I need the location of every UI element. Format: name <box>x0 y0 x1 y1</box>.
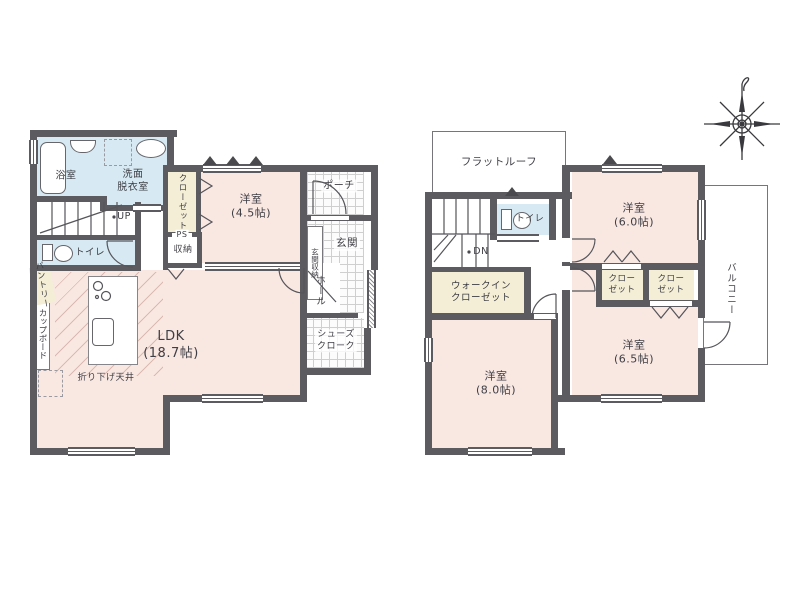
wall <box>551 313 558 455</box>
room-label-wic: ウォークイン クローゼット <box>451 281 511 306</box>
closet-door-opening <box>602 264 641 269</box>
room-label-balcony: バルコニー <box>723 263 737 316</box>
sliding-door <box>497 234 539 242</box>
wall <box>490 199 497 240</box>
wall <box>562 172 570 238</box>
window <box>697 200 706 240</box>
room-label-bedroom65: 洋室 (6.5帖) <box>614 339 654 368</box>
floorplan-canvas: 浴室 洗面 脱衣室 クローゼット UP トイレ PS 収納 洋室 (4.5帖) … <box>0 0 800 600</box>
wall <box>562 290 570 402</box>
room-label-bedroom80: 洋室 (8.0帖) <box>476 370 516 399</box>
room-label-closet-b: クロー ゼット <box>657 274 684 296</box>
room-bedroom-6-5-nook <box>572 270 596 307</box>
window <box>602 164 662 173</box>
wall <box>698 165 705 200</box>
wall <box>549 197 556 240</box>
door-opening <box>534 314 556 319</box>
wall <box>562 262 570 266</box>
wall <box>524 267 531 320</box>
wall <box>643 270 649 300</box>
room-label-bedroom60: 洋室 (6.0帖) <box>614 202 654 231</box>
wall <box>596 270 602 300</box>
closet-door-opening <box>650 301 692 306</box>
wall <box>425 267 531 272</box>
label-flat-roof: フラットルーフ <box>461 156 537 170</box>
wall <box>425 192 432 455</box>
window <box>424 338 433 362</box>
room-label-toilet-2f: トイレ <box>516 214 545 226</box>
window <box>601 394 662 403</box>
stairs-down-label: DN <box>473 246 488 258</box>
toilet-tank-2f <box>501 209 512 230</box>
wall <box>698 240 705 318</box>
wall <box>698 348 705 402</box>
floor-2f-plan: フラットルーフ DN トイレ 洋室 (6.0帖) クロー ゼット クロー ゼット… <box>0 0 800 600</box>
window <box>468 447 532 456</box>
room-label-closet-a: クロー ゼット <box>608 274 635 296</box>
